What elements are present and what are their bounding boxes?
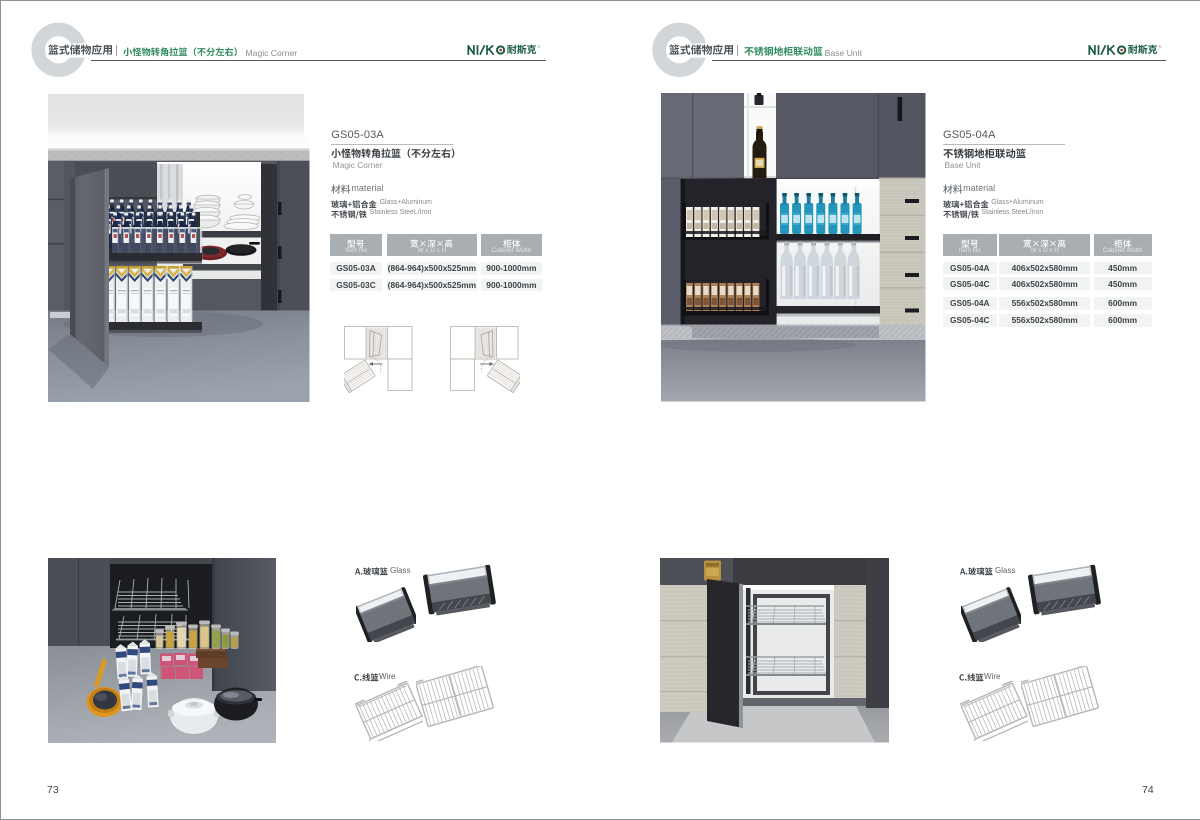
svg-text:®: ®	[538, 45, 541, 49]
svg-text:®: ®	[1159, 45, 1162, 49]
